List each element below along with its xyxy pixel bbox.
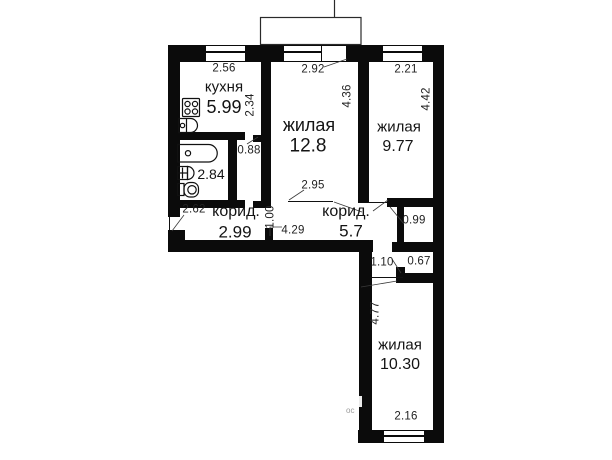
wall-bottomroom-left [359,240,372,443]
wall-bottomroom-jamb [396,267,405,283]
window-livingbottom [383,430,425,443]
wall-right [433,45,444,443]
dim-door-offset: 2.95 [301,180,324,192]
dim-kitchen-depth: 2.34 [245,93,257,116]
dim-living-right-width: 2.21 [394,64,417,76]
label-corridor-left: корид. [212,204,260,220]
dim-corridor-left-width: 2.62 [182,204,205,216]
stove-burner-icon [185,101,190,106]
dim-living-right-depth: 4.42 [421,87,433,110]
watermark-fragment: ос [346,406,354,415]
wall-corridor-stub [265,228,273,242]
area-living-bottom: 10.30 [380,357,420,373]
dim-living-bottom-depth: 4.77 [370,301,382,324]
dim-passage-width: 0.88 [237,145,260,157]
wall-livingmain-left [261,62,271,208]
dim-closet-width: 0.99 [402,215,425,227]
area-bathroom: 2.84 [197,167,224,181]
kitchen-sink-tap [180,123,184,127]
wall-passage-tick [253,135,261,142]
area-corridor-left: 2.99 [218,224,251,241]
stove-burner-icon [185,109,190,114]
area-kitchen: 5.99 [206,98,241,116]
window-kitchen [205,45,246,62]
window-livingright [382,45,423,62]
wall-livingright-bottom [387,198,433,207]
window-glazing-line [383,51,422,53]
stove-burner-icon [192,109,197,114]
wall-bottomroom-top [403,273,434,283]
dim-living-main-depth: 4.36 [342,84,354,107]
kitchen-sink-icon [179,119,198,133]
stove-icon [183,99,200,117]
label-kitchen: кухня [205,80,243,95]
bathtub-drain [185,151,190,156]
dim-bottom-door-width: 1.10 [370,257,393,269]
bathtub-icon [178,145,218,163]
window-livingmain [283,45,322,62]
area-corridor-right: 5.7 [339,223,363,240]
wall-nook-bottom [392,242,433,252]
label-living-bottom: жилая [378,338,422,353]
dim-corridor-length: 4.29 [281,225,304,237]
dim-corridor-door-width: 1.00 [265,205,277,228]
toilet-bowl-icon [184,183,199,198]
stove-burner-icon [192,101,197,106]
wall-between-living-rooms [358,62,369,203]
wall-bath-right [228,132,237,208]
wall-left [168,45,180,217]
dim-kitchen-width: 2.56 [212,63,235,75]
area-living-right: 9.77 [382,139,413,155]
floor-plan: кухня 5.99 жилая 12.8 жилая 9.77 жилая 1… [0,0,612,460]
label-living-main: жилая [283,116,335,134]
leader-livingright-door [373,200,388,211]
dim-living-bottom-width: 2.16 [394,411,417,423]
dim-recess-depth: 0.67 [407,256,430,268]
label-corridor-right: корид. [322,204,370,220]
balcony-outline [261,18,362,45]
label-living-right: жилая [377,120,421,135]
toilet-bowl-inner [188,186,196,194]
area-living-main: 12.8 [290,137,327,156]
window-glazing-line [384,435,424,437]
balcony-door-opening [322,45,346,62]
bath-sink-bowl [188,167,195,180]
dim-living-main-width: 2.92 [301,64,324,76]
window-glazing-line [206,51,245,53]
leader-corridor-left-width [172,215,184,231]
window-glazing-line [284,51,321,53]
